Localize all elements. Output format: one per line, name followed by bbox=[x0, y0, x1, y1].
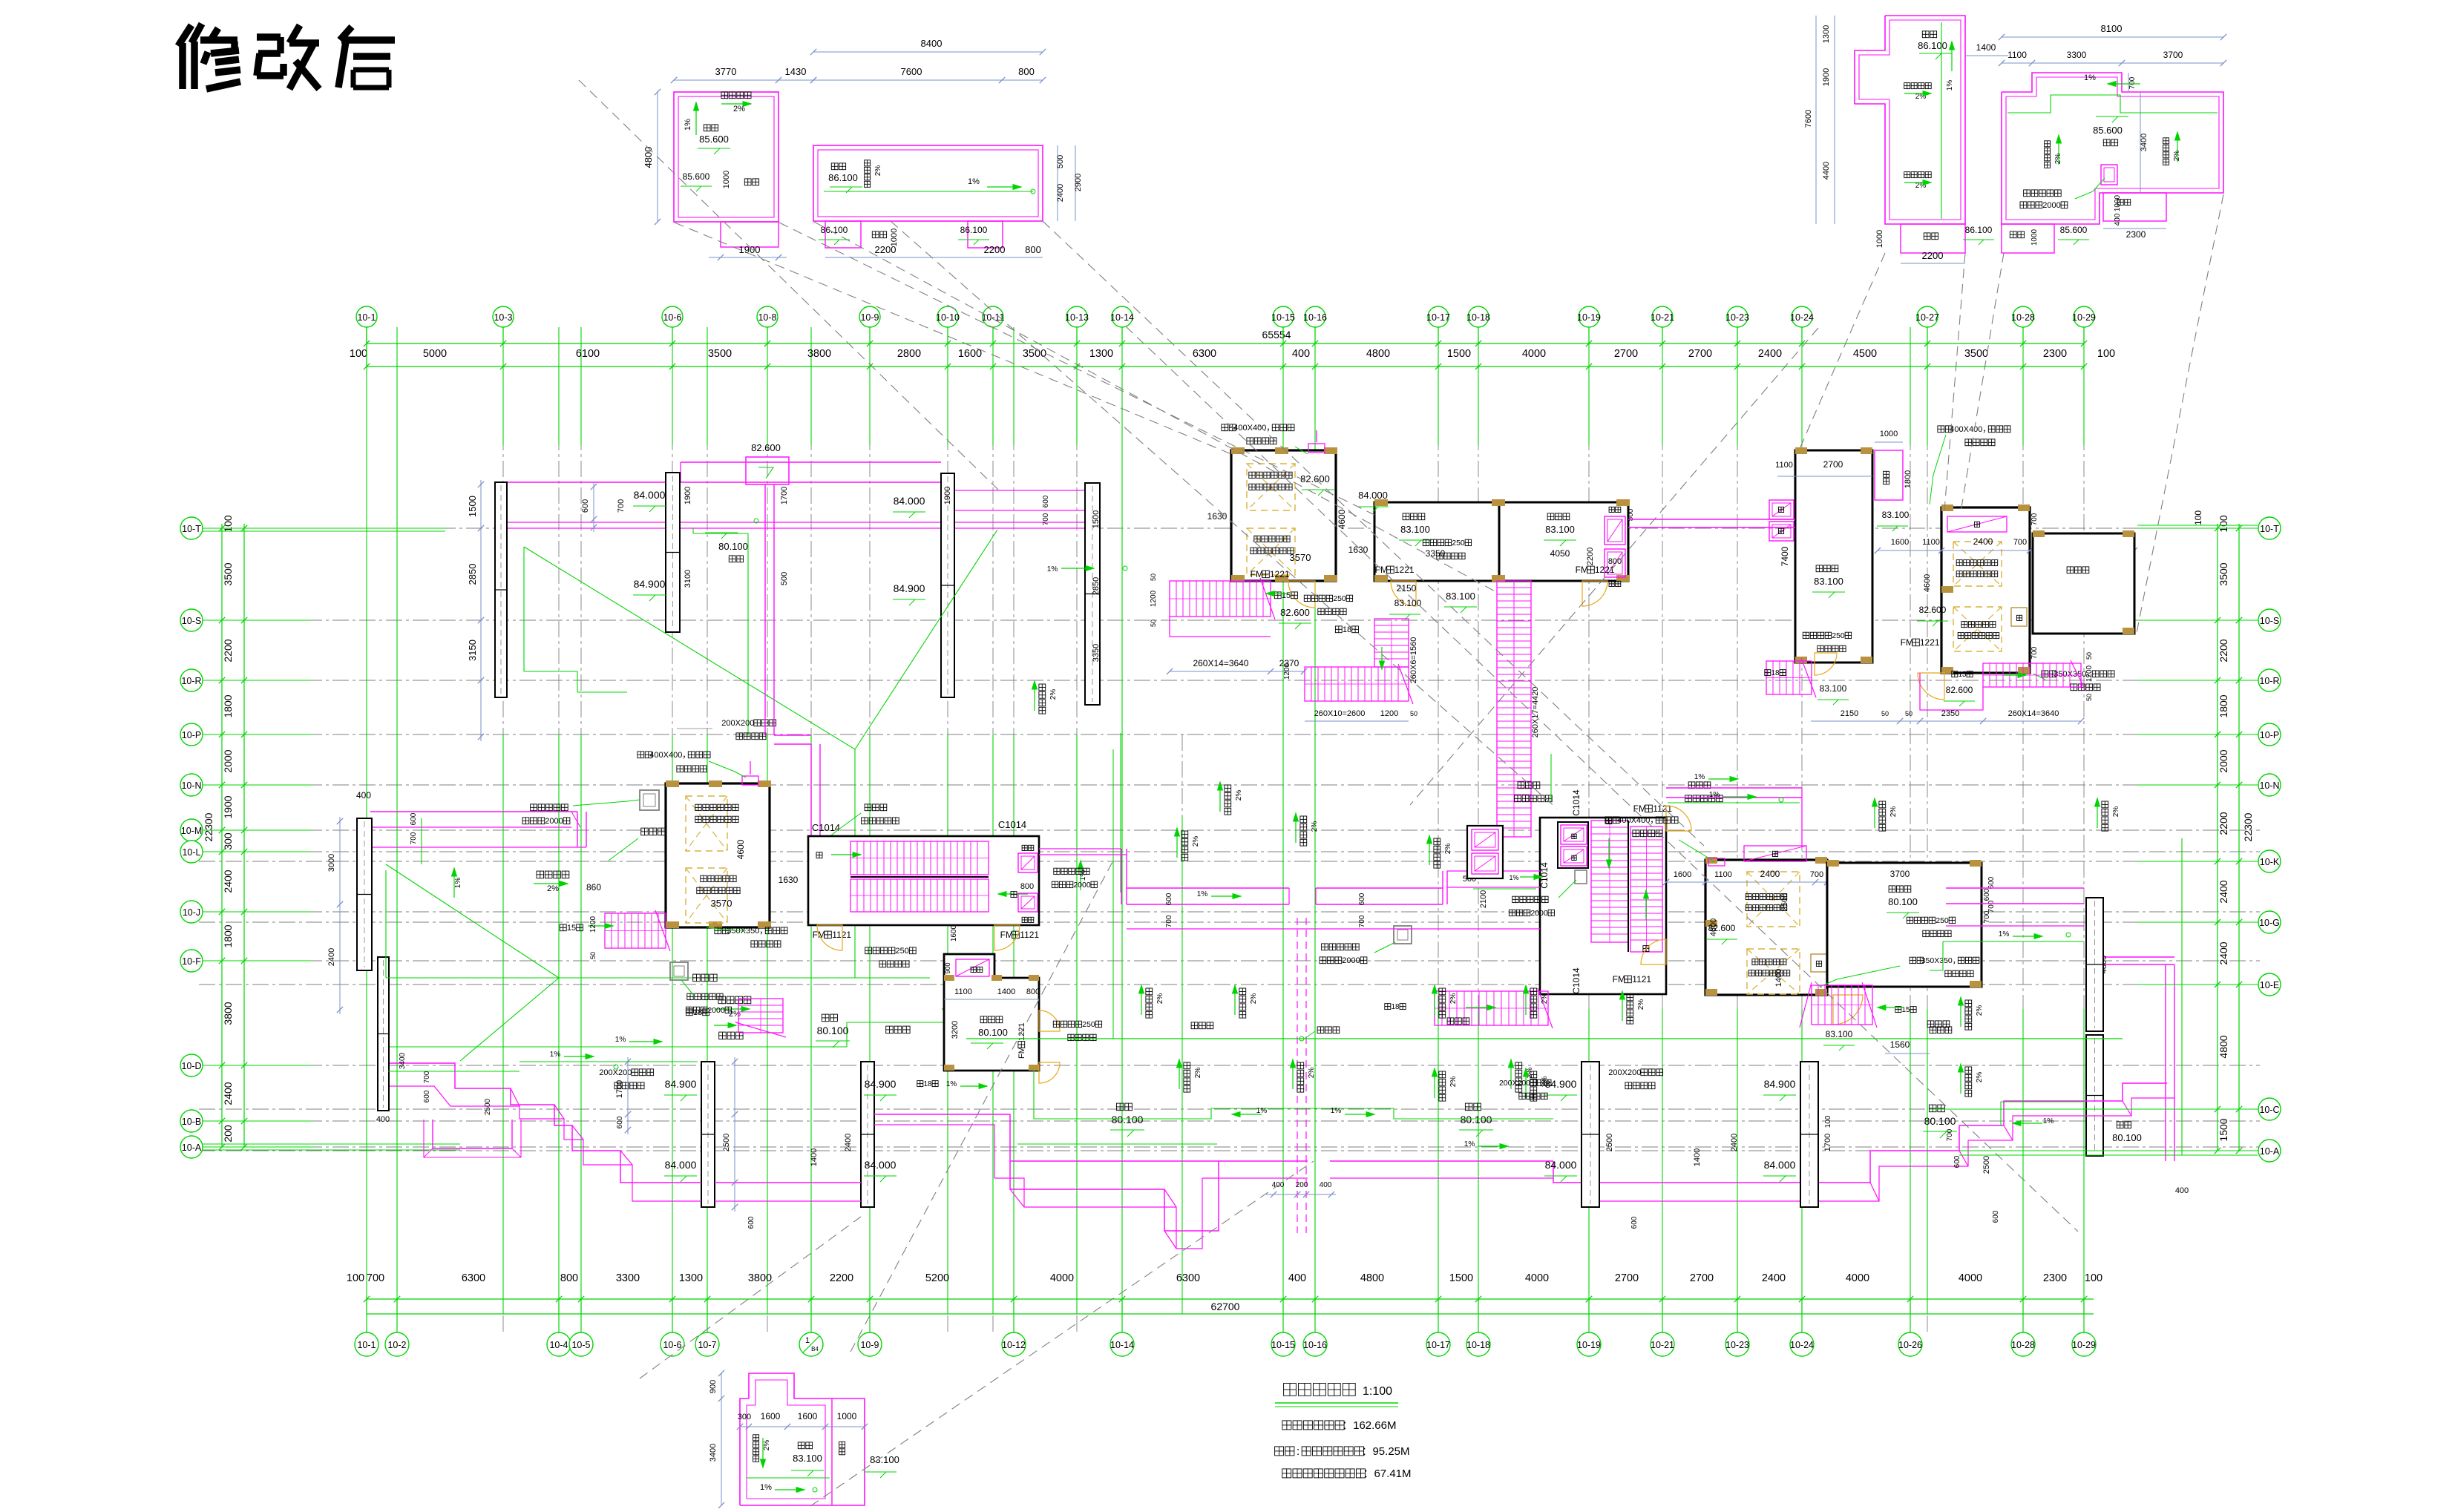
svg-text:83.100: 83.100 bbox=[1400, 524, 1430, 535]
svg-text:1700: 1700 bbox=[615, 1080, 624, 1098]
svg-text:1200: 1200 bbox=[1283, 663, 1291, 680]
svg-text:4000: 4000 bbox=[1959, 1272, 1982, 1284]
svg-text:10-T: 10-T bbox=[182, 524, 201, 534]
svg-text:3800: 3800 bbox=[807, 348, 831, 360]
svg-text:10-B: 10-B bbox=[182, 1117, 201, 1127]
svg-text:2%: 2% bbox=[2112, 806, 2120, 818]
svg-text:3350: 3350 bbox=[1092, 644, 1101, 662]
svg-text:C1014: C1014 bbox=[1571, 789, 1582, 816]
svg-text:10-16: 10-16 bbox=[1303, 312, 1327, 323]
svg-text:10-17: 10-17 bbox=[1426, 1340, 1450, 1350]
svg-text:2700: 2700 bbox=[1690, 1272, 1714, 1284]
svg-text:1121: 1121 bbox=[1632, 974, 1651, 985]
svg-text:10-21: 10-21 bbox=[1651, 312, 1674, 323]
svg-text:10-29: 10-29 bbox=[2072, 1340, 2096, 1350]
svg-text:10-6: 10-6 bbox=[663, 1340, 681, 1350]
svg-text:2%: 2% bbox=[1194, 1068, 1202, 1079]
svg-text:84.000: 84.000 bbox=[894, 495, 925, 507]
svg-text:2300: 2300 bbox=[2126, 229, 2146, 240]
svg-text:80.100: 80.100 bbox=[2112, 1132, 2142, 1143]
svg-text:18: 18 bbox=[923, 1080, 932, 1088]
svg-text:1%: 1% bbox=[760, 1483, 772, 1492]
svg-text:10-3: 10-3 bbox=[494, 312, 512, 323]
svg-text:1600: 1600 bbox=[1674, 870, 1691, 879]
svg-text:1500: 1500 bbox=[2218, 1118, 2229, 1141]
svg-text:80.100: 80.100 bbox=[1888, 896, 1918, 907]
svg-text:10-24: 10-24 bbox=[1790, 312, 1814, 323]
svg-text:1200: 1200 bbox=[1380, 709, 1398, 718]
svg-text:1400: 1400 bbox=[1976, 42, 1996, 53]
svg-text:50: 50 bbox=[2085, 652, 2093, 660]
svg-text:10-15: 10-15 bbox=[1271, 1340, 1295, 1350]
svg-text:1%: 1% bbox=[1331, 1107, 1342, 1115]
svg-text:1600: 1600 bbox=[761, 1411, 781, 1421]
svg-text:84.000: 84.000 bbox=[1358, 490, 1388, 501]
svg-text:2400: 2400 bbox=[327, 948, 336, 966]
svg-text:2000: 2000 bbox=[1342, 956, 1360, 965]
svg-text:250: 250 bbox=[1452, 539, 1465, 548]
svg-text:700: 700 bbox=[617, 499, 626, 513]
svg-text:85.600: 85.600 bbox=[683, 171, 710, 182]
svg-text:3500: 3500 bbox=[1964, 348, 1988, 360]
svg-text:82.600: 82.600 bbox=[751, 442, 781, 453]
svg-text:82.600: 82.600 bbox=[1919, 605, 1947, 615]
svg-text:84.000: 84.000 bbox=[865, 1159, 897, 1171]
svg-text:：95.25M: ：95.25M bbox=[1361, 1445, 1409, 1458]
svg-text:1100: 1100 bbox=[954, 987, 972, 996]
svg-text:860: 860 bbox=[586, 882, 601, 893]
svg-text:4800: 4800 bbox=[643, 147, 654, 168]
svg-text:86.100: 86.100 bbox=[828, 172, 858, 183]
svg-text:1100: 1100 bbox=[1775, 461, 1793, 470]
svg-text:600: 600 bbox=[616, 1116, 624, 1128]
svg-text:10-28: 10-28 bbox=[2011, 1340, 2035, 1350]
svg-text:1121: 1121 bbox=[1653, 803, 1672, 814]
svg-text:2400: 2400 bbox=[1760, 869, 1780, 879]
svg-text:4000: 4000 bbox=[1525, 1272, 1549, 1284]
svg-text:1900: 1900 bbox=[684, 487, 692, 504]
svg-text:2%: 2% bbox=[1192, 836, 1200, 847]
svg-text:10-S: 10-S bbox=[182, 616, 201, 626]
svg-text:1100: 1100 bbox=[2007, 50, 2027, 60]
svg-text:10-26: 10-26 bbox=[1898, 1340, 1922, 1350]
svg-text:10-9: 10-9 bbox=[860, 312, 879, 323]
svg-text:300: 300 bbox=[222, 832, 234, 850]
svg-text:400: 400 bbox=[356, 790, 371, 801]
svg-text:FM: FM bbox=[1633, 803, 1646, 814]
svg-text:83.100: 83.100 bbox=[1446, 591, 1475, 602]
svg-text:2400: 2400 bbox=[1056, 184, 1065, 202]
svg-text:1630: 1630 bbox=[1348, 545, 1369, 555]
svg-text:10-11: 10-11 bbox=[981, 312, 1004, 323]
svg-text:2200: 2200 bbox=[2218, 812, 2229, 835]
svg-text:86.100: 86.100 bbox=[821, 225, 848, 235]
svg-text:600: 600 bbox=[747, 1216, 755, 1229]
svg-text:2700: 2700 bbox=[1823, 459, 1843, 470]
svg-text:4600: 4600 bbox=[1337, 509, 1347, 529]
svg-text:700: 700 bbox=[2013, 538, 2027, 547]
svg-text:85.600: 85.600 bbox=[2093, 125, 2123, 136]
svg-text:400: 400 bbox=[1288, 1272, 1306, 1284]
svg-text:600: 600 bbox=[1042, 495, 1050, 507]
svg-text:FM: FM bbox=[1017, 1047, 1026, 1059]
svg-text:84.000: 84.000 bbox=[1764, 1159, 1796, 1171]
svg-text:2200: 2200 bbox=[1586, 548, 1595, 565]
svg-text:C1014: C1014 bbox=[1571, 967, 1582, 994]
svg-text:400X400，: 400X400， bbox=[649, 751, 690, 760]
svg-text:FM: FM bbox=[1613, 974, 1625, 985]
svg-text:2400: 2400 bbox=[1762, 1272, 1786, 1284]
svg-text:2900: 2900 bbox=[1074, 174, 1083, 191]
svg-text:700: 700 bbox=[2128, 76, 2137, 89]
svg-text:5000: 5000 bbox=[423, 348, 447, 360]
svg-text:B4: B4 bbox=[811, 1346, 819, 1352]
svg-text:6300: 6300 bbox=[1193, 348, 1216, 360]
svg-text:1900: 1900 bbox=[222, 795, 234, 818]
svg-text:2000: 2000 bbox=[2218, 749, 2229, 772]
svg-text:18: 18 bbox=[1771, 669, 1780, 677]
svg-text:2700: 2700 bbox=[1688, 348, 1712, 360]
svg-text:1%: 1% bbox=[1256, 1107, 1268, 1115]
svg-text:10-19: 10-19 bbox=[1577, 1340, 1601, 1350]
svg-text:86.100: 86.100 bbox=[960, 225, 988, 235]
svg-text:2%: 2% bbox=[1235, 790, 1243, 801]
svg-text:10-R: 10-R bbox=[2259, 676, 2279, 686]
svg-text:3400: 3400 bbox=[709, 1444, 718, 1462]
svg-text:1700: 1700 bbox=[780, 487, 789, 504]
svg-text:FM: FM bbox=[1000, 930, 1013, 940]
svg-text:10-4: 10-4 bbox=[549, 1340, 568, 1350]
svg-text:1000: 1000 bbox=[1875, 230, 1884, 248]
svg-text:700: 700 bbox=[1810, 870, 1823, 879]
svg-text:50: 50 bbox=[2085, 694, 2093, 701]
svg-text:80.100: 80.100 bbox=[978, 1027, 1008, 1038]
svg-text:1%: 1% bbox=[1694, 773, 1705, 781]
svg-text:1200: 1200 bbox=[1150, 590, 1158, 607]
svg-text:3300: 3300 bbox=[616, 1272, 640, 1284]
svg-text:10-19: 10-19 bbox=[1577, 312, 1601, 323]
svg-text:50: 50 bbox=[1150, 573, 1157, 581]
svg-text:2300: 2300 bbox=[2043, 1272, 2067, 1284]
svg-text:700: 700 bbox=[423, 1071, 431, 1083]
svg-text:FM: FM bbox=[1901, 637, 1913, 648]
svg-text:1%: 1% bbox=[1509, 874, 1518, 881]
svg-text:1%: 1% bbox=[1464, 1140, 1475, 1148]
svg-text:2%: 2% bbox=[2173, 151, 2181, 162]
svg-text:1900: 1900 bbox=[1822, 68, 1831, 86]
svg-text:100: 100 bbox=[2085, 1272, 2102, 1284]
svg-text:200: 200 bbox=[222, 1125, 234, 1143]
svg-text:1:100: 1:100 bbox=[1363, 1385, 1392, 1398]
svg-text:800: 800 bbox=[1018, 66, 1035, 77]
svg-text:2400: 2400 bbox=[844, 1134, 853, 1151]
svg-text:62700: 62700 bbox=[1211, 1301, 1240, 1312]
svg-text:10-14: 10-14 bbox=[1110, 1340, 1134, 1350]
svg-text:2%: 2% bbox=[1049, 689, 1058, 700]
svg-text:200X200: 200X200 bbox=[1499, 1079, 1530, 1088]
svg-text::: : bbox=[1297, 1445, 1299, 1458]
svg-text:600: 600 bbox=[1165, 893, 1173, 905]
svg-text:900: 900 bbox=[944, 962, 951, 973]
svg-text:10-24: 10-24 bbox=[1790, 1340, 1814, 1350]
svg-text:1400: 1400 bbox=[1774, 969, 1783, 987]
svg-text:100: 100 bbox=[2193, 510, 2203, 525]
svg-text:10-9: 10-9 bbox=[860, 1340, 879, 1350]
svg-text:250: 250 bbox=[1082, 1020, 1095, 1029]
svg-text:1121: 1121 bbox=[832, 930, 851, 940]
svg-text:400X400，: 400X400， bbox=[1617, 816, 1658, 825]
svg-text:700: 700 bbox=[1165, 915, 1173, 927]
svg-text:10-F: 10-F bbox=[182, 956, 201, 967]
svg-text:2%: 2% bbox=[1156, 993, 1164, 1005]
svg-text:4050: 4050 bbox=[1550, 548, 1570, 559]
svg-text:1000: 1000 bbox=[1880, 430, 1898, 438]
svg-text:84.900: 84.900 bbox=[1764, 1078, 1796, 1090]
svg-text:2000: 2000 bbox=[1530, 909, 1548, 918]
svg-text:10-13: 10-13 bbox=[1065, 312, 1089, 323]
svg-text:1430: 1430 bbox=[785, 66, 807, 77]
svg-text:10-7: 10-7 bbox=[698, 1340, 716, 1350]
svg-text:3100: 3100 bbox=[684, 570, 692, 588]
svg-text:50: 50 bbox=[1905, 710, 1912, 717]
svg-text:10-28: 10-28 bbox=[2011, 312, 2035, 323]
svg-text:3800: 3800 bbox=[222, 1002, 234, 1025]
svg-text:5200: 5200 bbox=[925, 1272, 949, 1284]
svg-text:10-N: 10-N bbox=[181, 780, 201, 791]
svg-text:800: 800 bbox=[1020, 882, 1034, 891]
svg-text:10-A: 10-A bbox=[2260, 1146, 2280, 1157]
svg-text:1%: 1% bbox=[615, 1036, 626, 1044]
svg-text:2%: 2% bbox=[1449, 993, 1458, 1005]
svg-text:6300: 6300 bbox=[1176, 1272, 1200, 1284]
svg-text:1200: 1200 bbox=[589, 916, 597, 933]
svg-text:10-21: 10-21 bbox=[1651, 1340, 1674, 1350]
svg-text:2400: 2400 bbox=[2218, 941, 2229, 964]
svg-text:1%: 1% bbox=[1709, 791, 1720, 799]
svg-text:10-L: 10-L bbox=[182, 847, 200, 858]
svg-text:1800: 1800 bbox=[1904, 470, 1912, 488]
svg-text:83.100: 83.100 bbox=[1545, 524, 1575, 535]
svg-text:1500: 1500 bbox=[1447, 348, 1471, 360]
svg-text:2%: 2% bbox=[2054, 154, 2062, 165]
svg-text:1%: 1% bbox=[684, 119, 692, 131]
svg-text:15: 15 bbox=[567, 924, 576, 933]
svg-text:4800: 4800 bbox=[1366, 348, 1390, 360]
svg-text:3800: 3800 bbox=[748, 1272, 772, 1284]
svg-text:FM: FM bbox=[1576, 565, 1588, 575]
svg-text:65554: 65554 bbox=[1262, 329, 1291, 341]
svg-text:200X200: 200X200 bbox=[721, 719, 754, 728]
svg-text:100: 100 bbox=[2218, 515, 2229, 533]
svg-text:10-2: 10-2 bbox=[387, 1340, 406, 1350]
svg-text:2%: 2% bbox=[1444, 844, 1452, 855]
svg-text:10-C: 10-C bbox=[2259, 1105, 2279, 1115]
svg-text:100: 100 bbox=[222, 515, 234, 533]
svg-text:10-14: 10-14 bbox=[1110, 312, 1134, 323]
svg-text:1%: 1% bbox=[1999, 930, 2010, 939]
svg-text:4800: 4800 bbox=[1360, 1272, 1384, 1284]
svg-text:260X17=4420: 260X17=4420 bbox=[1531, 687, 1540, 738]
svg-text:1%: 1% bbox=[968, 177, 980, 186]
svg-text:1%: 1% bbox=[2043, 1117, 2054, 1125]
svg-text:300: 300 bbox=[738, 1413, 751, 1421]
svg-text:80.100: 80.100 bbox=[1924, 1115, 1956, 1127]
svg-text:2500: 2500 bbox=[1605, 1134, 1614, 1151]
svg-text:：67.41M: ：67.41M bbox=[1363, 1467, 1411, 1480]
svg-text:80.100: 80.100 bbox=[718, 541, 748, 552]
svg-text:4000: 4000 bbox=[1522, 348, 1546, 360]
svg-text:3500: 3500 bbox=[222, 562, 234, 585]
svg-text:50: 50 bbox=[1410, 710, 1417, 717]
svg-text:15: 15 bbox=[1282, 591, 1291, 600]
svg-text:2700: 2700 bbox=[1615, 1272, 1639, 1284]
svg-text:2500: 2500 bbox=[722, 1134, 731, 1151]
svg-text:18: 18 bbox=[1391, 1003, 1400, 1011]
svg-text:1800: 1800 bbox=[222, 694, 234, 717]
svg-text:4600: 4600 bbox=[735, 839, 746, 859]
svg-text:86.100: 86.100 bbox=[1918, 40, 1947, 51]
svg-text:83.100: 83.100 bbox=[1394, 598, 1422, 608]
svg-text:1400: 1400 bbox=[810, 1148, 819, 1166]
svg-text:3700: 3700 bbox=[1890, 869, 1910, 879]
svg-text:1630: 1630 bbox=[779, 875, 799, 885]
svg-text:10-M: 10-M bbox=[181, 826, 202, 836]
svg-text:3300: 3300 bbox=[2067, 50, 2087, 60]
svg-text:10-J: 10-J bbox=[183, 907, 200, 918]
svg-text:2100: 2100 bbox=[1479, 890, 1488, 908]
svg-text:2%: 2% bbox=[1889, 806, 1898, 818]
svg-text:2400: 2400 bbox=[222, 1082, 234, 1105]
svg-text:10-T: 10-T bbox=[2260, 524, 2279, 534]
svg-text:1500: 1500 bbox=[1449, 1272, 1473, 1284]
svg-text:700: 700 bbox=[2030, 646, 2039, 659]
svg-text:2500: 2500 bbox=[484, 1098, 492, 1115]
svg-text:2400: 2400 bbox=[2218, 880, 2229, 903]
svg-text:2%: 2% bbox=[874, 165, 882, 177]
svg-text:500: 500 bbox=[1056, 155, 1065, 168]
svg-text:84.000: 84.000 bbox=[1545, 1159, 1577, 1171]
svg-text:1100: 1100 bbox=[1922, 538, 1940, 547]
svg-text:1300: 1300 bbox=[1089, 348, 1113, 360]
svg-text:2150: 2150 bbox=[1841, 709, 1858, 718]
svg-text:10-D: 10-D bbox=[181, 1061, 201, 1071]
svg-text:3400: 3400 bbox=[2140, 134, 2148, 151]
svg-text:800: 800 bbox=[1026, 987, 1040, 996]
svg-text:10-A: 10-A bbox=[182, 1143, 202, 1153]
svg-text:10-5: 10-5 bbox=[571, 1340, 590, 1350]
svg-text:83.100: 83.100 bbox=[1882, 510, 1910, 520]
svg-text:260X14=3640: 260X14=3640 bbox=[1193, 658, 1248, 668]
svg-text:400: 400 bbox=[1292, 348, 1310, 360]
svg-text:1%: 1% bbox=[946, 1080, 957, 1088]
svg-text:3200: 3200 bbox=[951, 1021, 960, 1039]
svg-text:C1014: C1014 bbox=[998, 819, 1026, 830]
svg-text:8400: 8400 bbox=[921, 38, 943, 49]
svg-text:1500: 1500 bbox=[1092, 510, 1101, 528]
svg-text:350X350，: 350X350， bbox=[1921, 956, 1961, 965]
svg-text:2350: 2350 bbox=[1941, 709, 1959, 718]
svg-text:700: 700 bbox=[367, 1272, 384, 1284]
svg-text:10-27: 10-27 bbox=[1915, 312, 1939, 323]
svg-text:250: 250 bbox=[1333, 594, 1346, 603]
svg-text:2000: 2000 bbox=[707, 1006, 725, 1015]
svg-text:10-16: 10-16 bbox=[1303, 1340, 1327, 1350]
svg-text:260X6=1560: 260X6=1560 bbox=[1409, 637, 1418, 684]
svg-text:2%: 2% bbox=[1250, 993, 1258, 1005]
svg-text:1000: 1000 bbox=[2030, 229, 2039, 246]
svg-text:84.900: 84.900 bbox=[665, 1078, 697, 1090]
svg-text:1700: 1700 bbox=[1823, 1134, 1832, 1151]
svg-text:10-E: 10-E bbox=[2260, 980, 2279, 990]
svg-text:2%: 2% bbox=[1449, 1077, 1458, 1088]
svg-text:3570: 3570 bbox=[711, 898, 732, 909]
svg-text:2000: 2000 bbox=[222, 749, 234, 772]
svg-text:10-K: 10-K bbox=[2260, 857, 2280, 867]
svg-text:2000: 2000 bbox=[2042, 201, 2060, 210]
svg-text:83.100: 83.100 bbox=[870, 1454, 899, 1465]
svg-text:2150: 2150 bbox=[1397, 583, 1417, 594]
svg-text:100: 100 bbox=[350, 348, 367, 360]
svg-text:50: 50 bbox=[1150, 619, 1157, 627]
svg-text:2%: 2% bbox=[1637, 999, 1645, 1010]
svg-text:10-23: 10-23 bbox=[1725, 312, 1749, 323]
svg-text:2%: 2% bbox=[1311, 821, 1319, 832]
svg-text:4800: 4800 bbox=[2218, 1035, 2229, 1058]
svg-text:84.000: 84.000 bbox=[634, 489, 666, 501]
svg-text:800: 800 bbox=[560, 1272, 578, 1284]
svg-text:1221: 1221 bbox=[1920, 637, 1940, 648]
svg-text:3000: 3000 bbox=[327, 854, 336, 872]
svg-text:1%: 1% bbox=[1047, 565, 1058, 573]
svg-text:10-P: 10-P bbox=[2260, 730, 2279, 740]
svg-text:100: 100 bbox=[347, 1272, 364, 1284]
svg-text:10-1: 10-1 bbox=[357, 1340, 376, 1350]
svg-text:7600: 7600 bbox=[901, 66, 922, 77]
svg-text:10-17: 10-17 bbox=[1426, 312, 1450, 323]
svg-text:4400: 4400 bbox=[1822, 162, 1831, 180]
svg-text:1400: 1400 bbox=[997, 987, 1015, 996]
svg-text:250: 250 bbox=[1936, 916, 1949, 925]
svg-text:10-29: 10-29 bbox=[2072, 312, 2096, 323]
svg-text:3150: 3150 bbox=[467, 640, 478, 661]
svg-text:250: 250 bbox=[1832, 631, 1845, 640]
svg-text:400X400，: 400X400， bbox=[1233, 424, 1274, 433]
svg-text:3350: 3350 bbox=[1426, 548, 1446, 559]
svg-text:86.100: 86.100 bbox=[1965, 225, 1993, 235]
svg-text:700: 700 bbox=[410, 832, 418, 844]
svg-text:10-12: 10-12 bbox=[1002, 1340, 1026, 1350]
svg-text:260X10=2600: 260X10=2600 bbox=[1314, 709, 1366, 718]
svg-text:1500: 1500 bbox=[467, 496, 478, 517]
svg-text:82.600: 82.600 bbox=[1280, 607, 1310, 618]
svg-text:1100: 1100 bbox=[1714, 870, 1732, 879]
svg-text:83.100: 83.100 bbox=[1814, 576, 1843, 587]
svg-text:2800: 2800 bbox=[897, 348, 921, 360]
svg-text:80.100: 80.100 bbox=[1112, 1114, 1144, 1125]
svg-text:10-1: 10-1 bbox=[357, 312, 376, 323]
svg-text:100: 100 bbox=[2097, 348, 2115, 360]
svg-text:260X14=3640: 260X14=3640 bbox=[2008, 709, 2059, 718]
svg-text:1400: 1400 bbox=[1693, 1148, 1702, 1166]
svg-text:1800: 1800 bbox=[2218, 694, 2229, 717]
svg-text:10-10: 10-10 bbox=[936, 312, 960, 323]
svg-text:500: 500 bbox=[780, 572, 789, 585]
svg-text:3500: 3500 bbox=[708, 348, 732, 360]
svg-text:1000: 1000 bbox=[722, 171, 731, 188]
svg-text:FM: FM bbox=[1251, 569, 1263, 579]
svg-text:3500: 3500 bbox=[1023, 348, 1046, 360]
svg-text:1%: 1% bbox=[1197, 890, 1208, 898]
